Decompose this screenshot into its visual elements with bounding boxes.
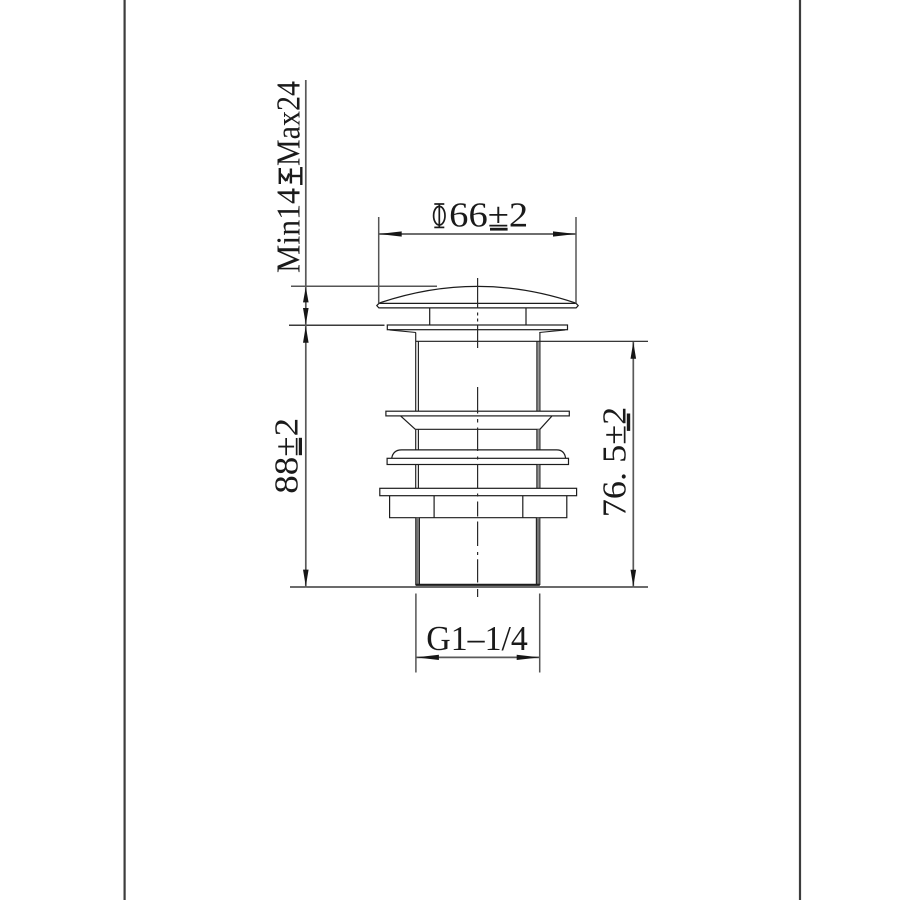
svg-text:G1–1/4: G1–1/4 xyxy=(426,619,528,658)
svg-text:Min14: Min14 xyxy=(271,188,308,273)
svg-text:66±2: 66±2 xyxy=(449,195,528,234)
svg-text:88±2: 88±2 xyxy=(269,418,306,494)
svg-text:Max24: Max24 xyxy=(271,81,308,166)
